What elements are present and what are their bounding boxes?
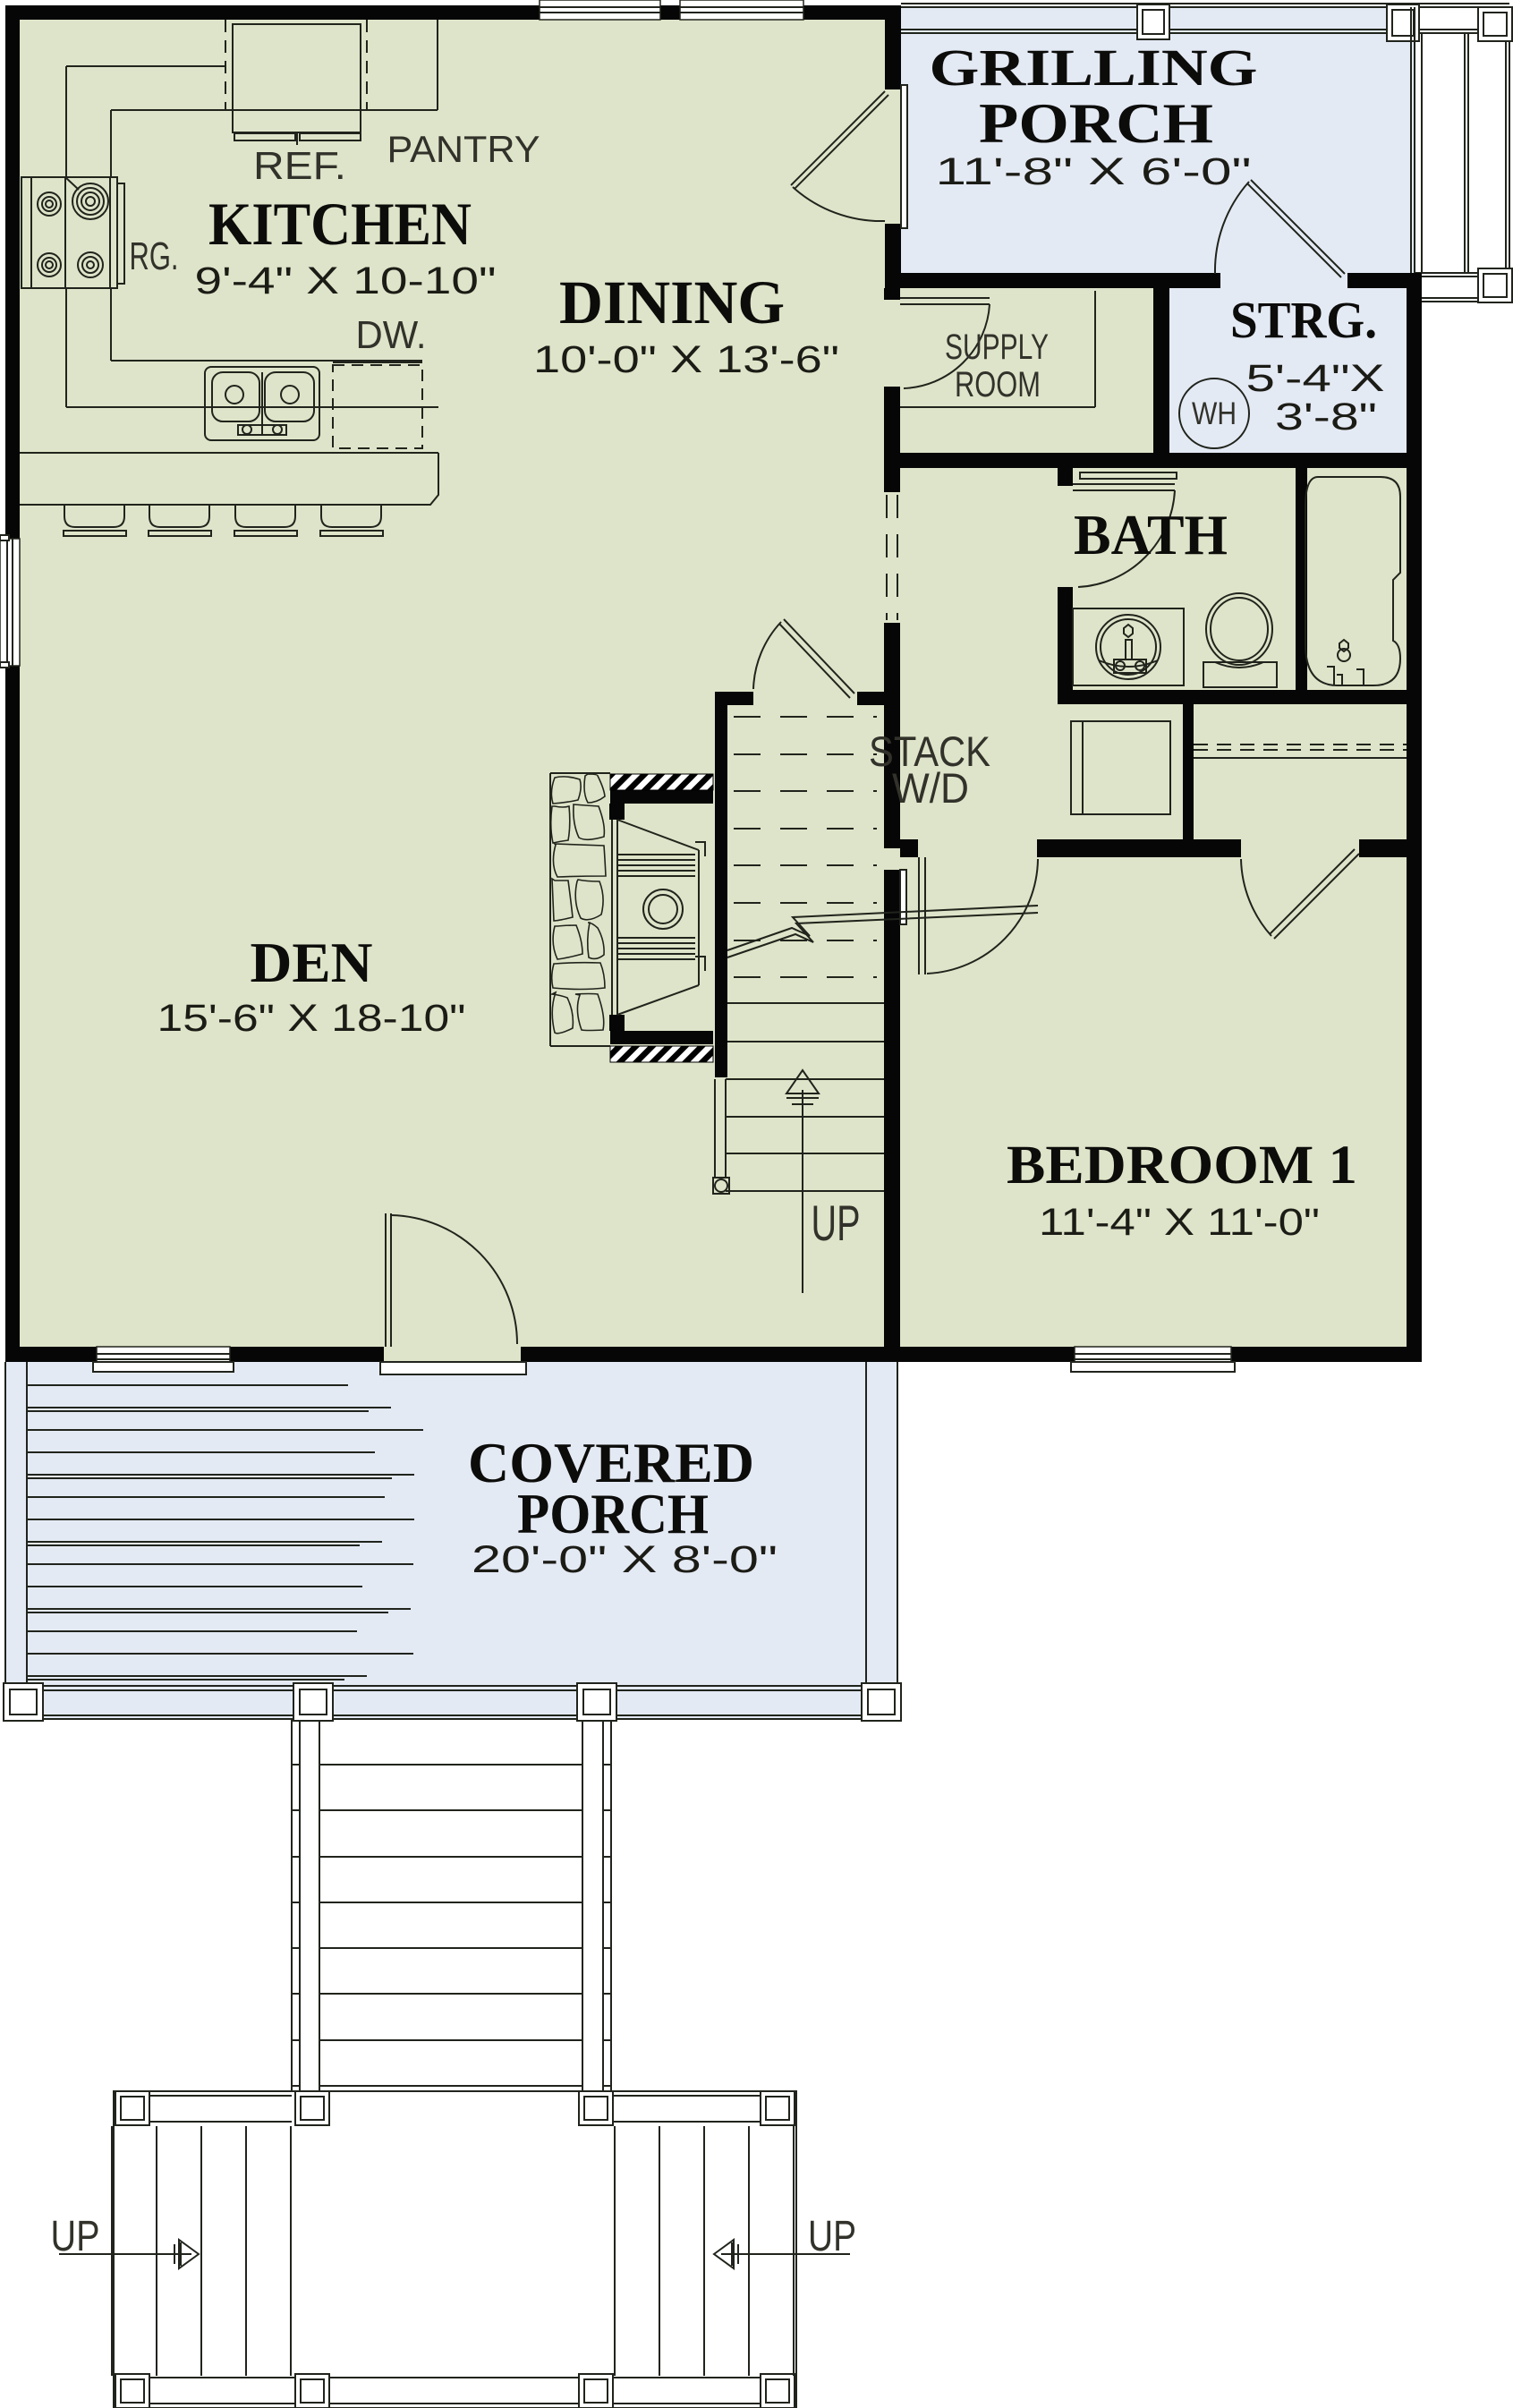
svg-text:9'-4" X 10-10": 9'-4" X 10-10": [195, 260, 497, 302]
svg-text:SUPPLY: SUPPLY: [945, 328, 1049, 367]
svg-text:5'-4"X: 5'-4"X: [1246, 357, 1385, 400]
svg-text:UP: UP: [51, 2213, 100, 2260]
svg-text:11'-4" X 11'-0": 11'-4" X 11'-0": [1039, 1201, 1320, 1244]
svg-text:WH: WH: [1192, 396, 1237, 431]
svg-text:11'-8" X 6'-0": 11'-8" X 6'-0": [936, 150, 1252, 193]
svg-text:PORCH: PORCH: [517, 1482, 709, 1545]
svg-text:GRILLING: GRILLING: [930, 38, 1258, 97]
svg-text:3'-8": 3'-8": [1275, 396, 1377, 438]
svg-text:PORCH: PORCH: [979, 91, 1213, 155]
svg-text:UP: UP: [808, 2213, 856, 2260]
svg-text:UP: UP: [812, 1195, 861, 1251]
svg-text:ROOM: ROOM: [955, 365, 1041, 404]
svg-text:DINING: DINING: [559, 268, 785, 336]
svg-text:REF.: REF.: [253, 144, 346, 188]
svg-text:20'-0" X 8'-0": 20'-0" X 8'-0": [472, 1538, 778, 1581]
svg-text:STRG.: STRG.: [1230, 291, 1377, 349]
svg-text:KITCHEN: KITCHEN: [208, 190, 472, 258]
svg-text:W/D: W/D: [892, 764, 969, 812]
svg-text:DW.: DW.: [356, 313, 427, 357]
svg-text:PANTRY: PANTRY: [387, 128, 540, 170]
svg-text:BATH: BATH: [1074, 503, 1228, 566]
svg-text:DEN: DEN: [251, 932, 373, 994]
svg-text:15'-6" X 18-10": 15'-6" X 18-10": [157, 997, 466, 1040]
svg-text:10'-0" X 13'-6": 10'-0" X 13'-6": [533, 338, 839, 381]
svg-text:BEDROOM 1: BEDROOM 1: [1007, 1136, 1357, 1195]
svg-text:RG.: RG.: [130, 234, 179, 278]
